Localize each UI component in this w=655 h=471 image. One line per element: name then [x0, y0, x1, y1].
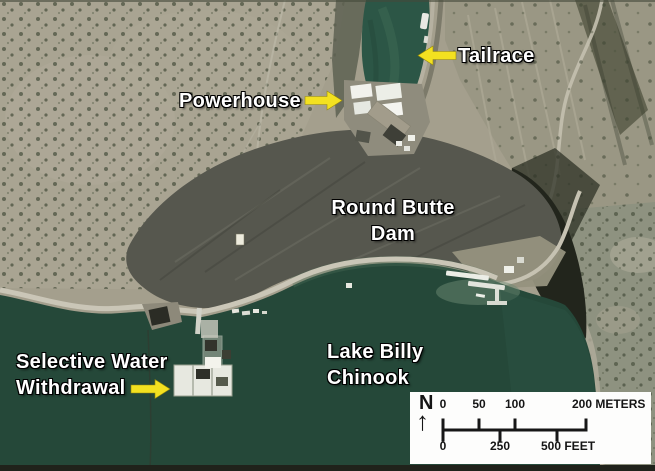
scale-meters-tick-50: 50 — [472, 397, 485, 411]
dam-label-line2: Dam — [325, 221, 461, 247]
crest-tower — [236, 234, 244, 245]
dam-label-line1: Round Butte — [325, 195, 461, 221]
scale-meters-end-label: 200 METERS — [572, 397, 645, 411]
scale-feet-tick-0: 0 — [440, 439, 447, 453]
lake-label: Lake Billy Chinook — [327, 339, 423, 391]
photo-bottom-edge — [0, 465, 655, 471]
scale-meters-tick-100: 100 — [505, 397, 525, 411]
sww-label-line1: Selective Water — [16, 349, 168, 375]
sww-label-line2: Withdrawal — [16, 375, 168, 401]
scale-feet-tick-250: 250 — [490, 439, 510, 453]
scale-bar-panel: N ↑ 0 50 100 200 METERS 0 250 500 FEET — [410, 392, 651, 464]
lake-label-line1: Lake Billy — [327, 339, 423, 365]
dam-label: Round Butte Dam — [325, 195, 461, 247]
aerial-map-figure: Powerhouse Tailrace Round Butte Dam Lake… — [0, 0, 655, 471]
tailrace-label: Tailrace — [458, 43, 535, 69]
sww-label: Selective Water Withdrawal — [16, 349, 168, 401]
scale-meters-tick-0: 0 — [440, 397, 447, 411]
powerhouse-label: Powerhouse — [179, 88, 301, 114]
scale-feet-end-label: 500 FEET — [541, 439, 595, 453]
buoy — [346, 283, 352, 288]
lake-label-line2: Chinook — [327, 365, 423, 391]
photo-top-edge — [0, 0, 655, 2]
